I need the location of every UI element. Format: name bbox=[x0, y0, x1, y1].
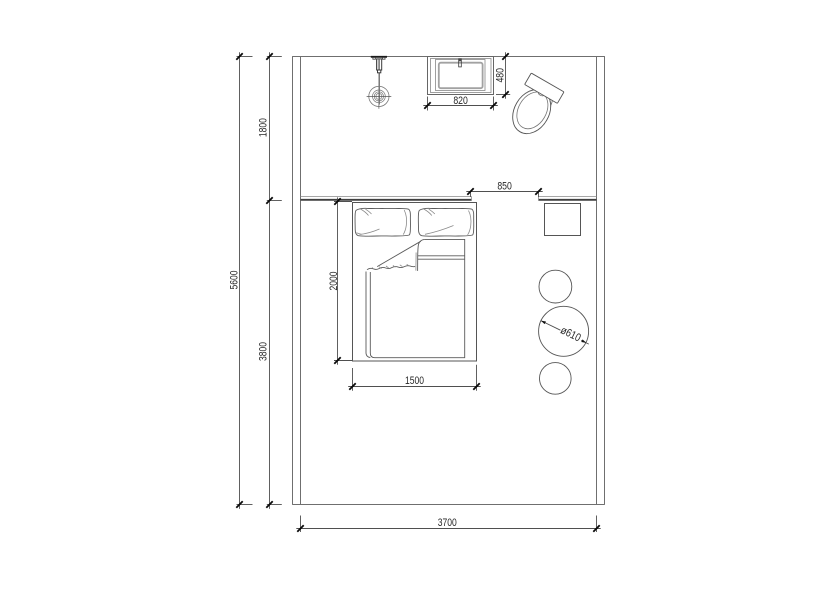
svg-text:5600: 5600 bbox=[229, 271, 241, 290]
svg-text:3700: 3700 bbox=[438, 517, 457, 529]
svg-text:1500: 1500 bbox=[405, 375, 424, 387]
svg-text:3800: 3800 bbox=[258, 342, 270, 361]
svg-text:1800: 1800 bbox=[258, 118, 270, 137]
svg-text:850: 850 bbox=[497, 181, 512, 193]
svg-text:480: 480 bbox=[495, 68, 507, 83]
svg-text:2000: 2000 bbox=[328, 272, 340, 291]
svg-text:820: 820 bbox=[453, 95, 468, 107]
